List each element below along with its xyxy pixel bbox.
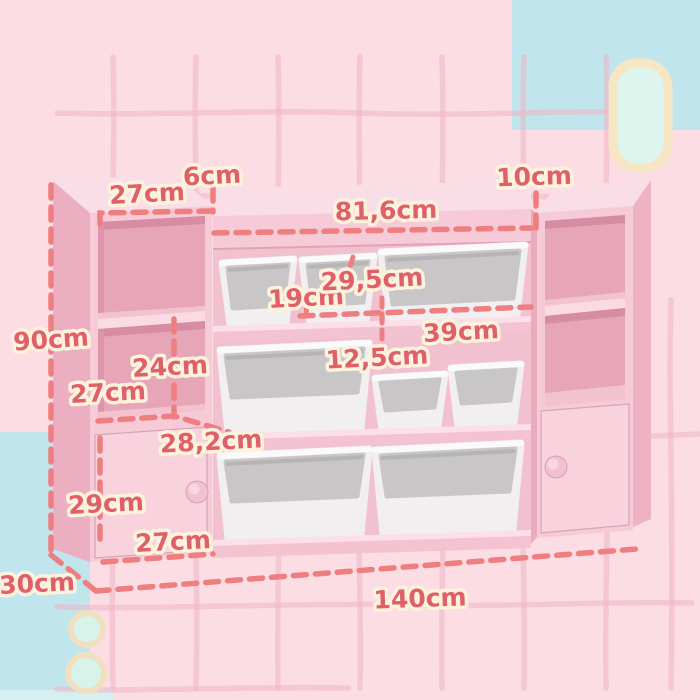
- dimension-label-middle-section-width: 81,6cm: [334, 195, 437, 227]
- dimension-label-side-compartment-width: 27cm: [69, 376, 146, 409]
- left-door-knob-highlight: [189, 484, 200, 495]
- storage-bin-large: [220, 449, 369, 539]
- dimension-label-top-edge-height: 6cm: [182, 159, 242, 191]
- bin-rim: [451, 364, 521, 368]
- decor-circle-2: [68, 655, 104, 691]
- dimension-label-total-width: 140cm: [373, 582, 467, 614]
- dimension-label-bin-height: 12,5cm: [325, 340, 429, 374]
- bin-rim: [375, 374, 445, 378]
- diagram-canvas: 27cm 6cm 81,6cm 10cm 90cm 19cm 29,5cm 39…: [0, 0, 700, 700]
- storage-bin-small: [451, 364, 521, 427]
- dimension-label-large-bin-width: 39cm: [422, 315, 499, 348]
- bin-rim: [222, 259, 294, 263]
- dimension-label-cabinet-door-height: 29cm: [67, 487, 144, 520]
- right-tower: [537, 180, 651, 538]
- dimension-label-cabinet-door-width: 27cm: [134, 525, 211, 558]
- storage-bin-small: [375, 374, 445, 430]
- left-tower-compartment-1: [98, 216, 205, 319]
- center-right-edge: [531, 209, 537, 544]
- dimension-label-top-shelf-width: 27cm: [108, 177, 185, 210]
- dimension-label-bin-row-depth: 28,2cm: [159, 424, 263, 458]
- dimension-label-bin-depth: 29,5cm: [320, 262, 424, 296]
- dimension-label-total-height: 90cm: [12, 322, 90, 356]
- diagram-svg: 27cm 6cm 81,6cm 10cm 90cm 19cm 29,5cm 39…: [0, 0, 700, 700]
- bin-rim: [302, 256, 374, 260]
- right-door-knob-highlight: [548, 459, 559, 470]
- right-tower-compartment-1: [545, 215, 625, 306]
- dimension-label-right-edge-height: 10cm: [496, 161, 573, 193]
- decor-rounded-pill: [613, 63, 668, 168]
- dimension-label-unit-depth: 30cm: [0, 567, 76, 600]
- right-tower-compartment-2: [545, 308, 625, 406]
- right-tower-side-face: [633, 180, 651, 527]
- storage-bin-large: [375, 443, 521, 534]
- decor-circle-1: [71, 613, 103, 645]
